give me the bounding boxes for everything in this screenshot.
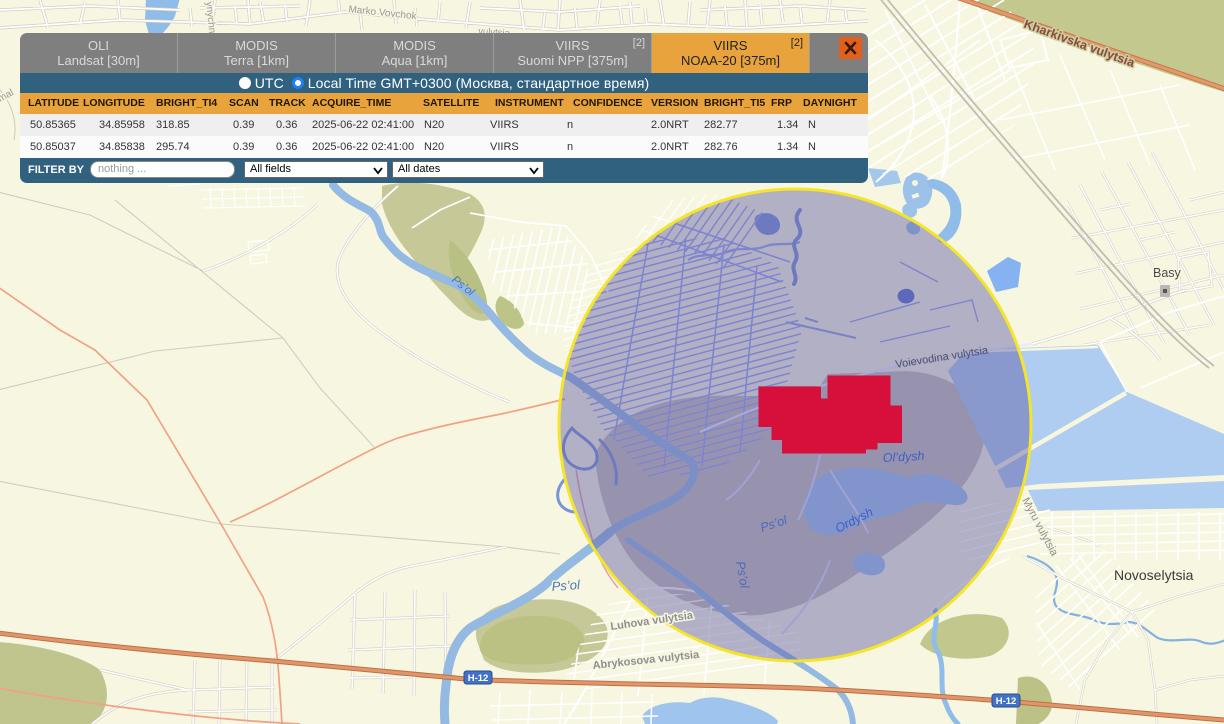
svg-text:Ol’dysh: Ol’dysh <box>882 449 924 465</box>
svg-text:H-12: H-12 <box>468 673 489 684</box>
svg-text:Novoselytsia: Novoselytsia <box>1114 567 1194 583</box>
svg-text:Basy: Basy <box>1153 266 1182 280</box>
svg-text:Ps’ol: Ps’ol <box>551 577 581 594</box>
svg-text:H-12: H-12 <box>996 696 1017 707</box>
